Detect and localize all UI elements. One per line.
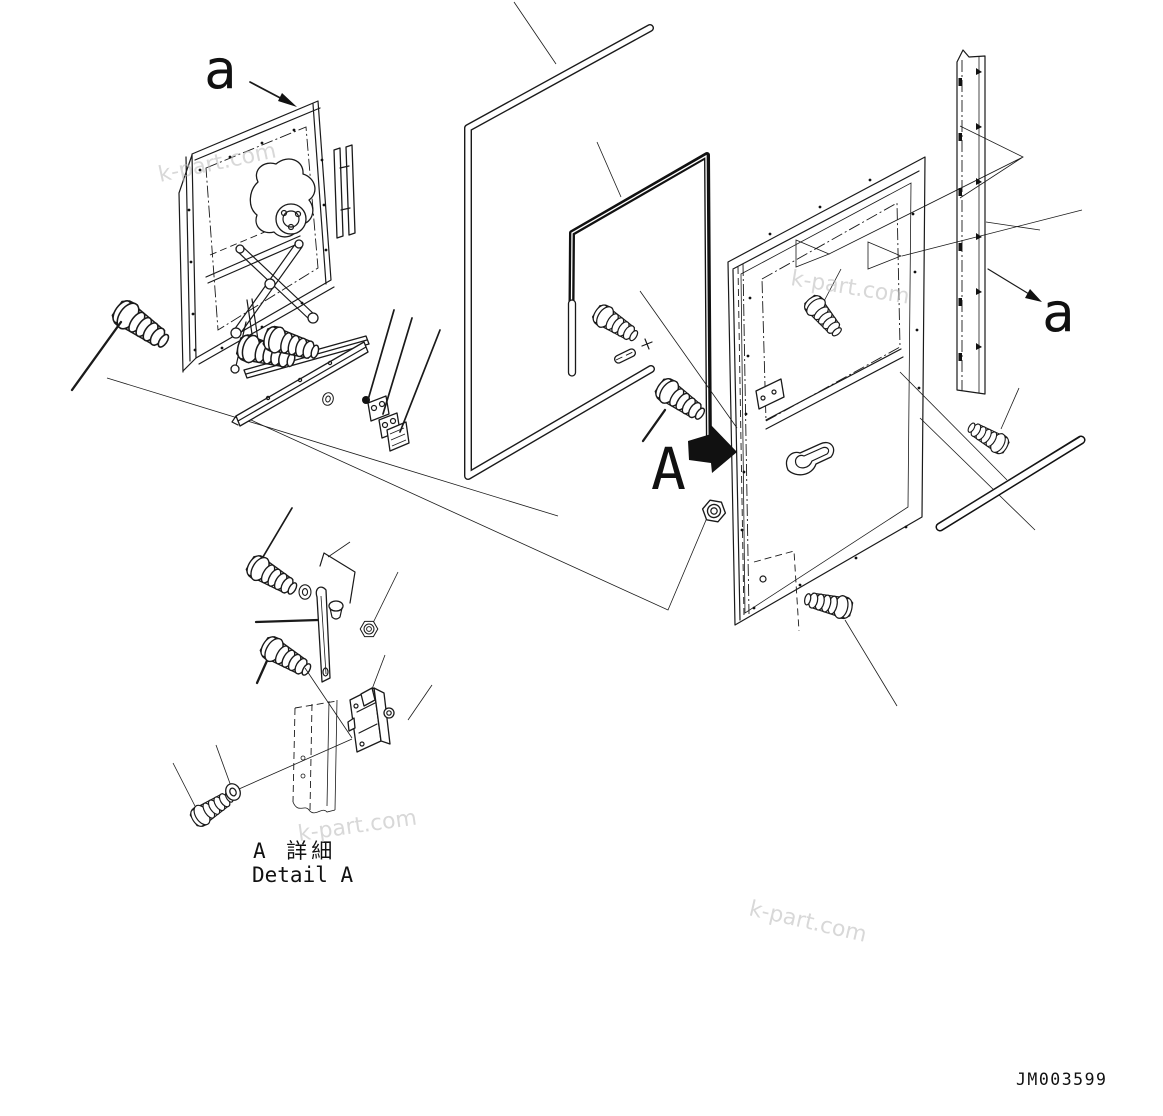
view-callout-a-left: a [204, 38, 297, 107]
bolt [802, 588, 854, 621]
washer [299, 585, 311, 599]
parts-diagram-page: a [0, 0, 1163, 1116]
arrowhead [278, 93, 297, 107]
bolt [964, 418, 1011, 457]
arrowhead [1025, 289, 1042, 302]
lock-mount-post [293, 700, 337, 813]
bolt [257, 633, 315, 682]
view-label-a-right: a [1042, 281, 1075, 344]
leader-line [597, 142, 621, 197]
nut [701, 499, 727, 523]
watermarks: k-part.com k-part.com k-part.com k-part.… [156, 139, 911, 948]
detail-a-assembly [173, 508, 432, 830]
glass-run-channel [468, 2, 651, 476]
spacer-pin [613, 348, 636, 364]
nut [360, 621, 378, 636]
bolt [801, 292, 847, 341]
bolt [590, 301, 643, 346]
regulator-mount-rail [232, 310, 440, 451]
leader-line [514, 2, 556, 64]
projection-triangle [868, 242, 901, 269]
detail-title-en: Detail A [252, 863, 354, 887]
bushing [329, 601, 343, 619]
exploded-parts-diagram: a [0, 0, 1163, 1116]
washer [321, 391, 334, 406]
detail-callout-A: A [651, 424, 737, 503]
watermark-text: k-part.com [747, 896, 869, 947]
door-panel [728, 157, 925, 631]
detail-arrow [688, 424, 737, 473]
watermark-text: k-part.com [296, 806, 418, 847]
door-handle [787, 443, 834, 475]
bolt [243, 552, 301, 601]
latch-bracket [756, 379, 784, 409]
door-edge-strip [957, 50, 1040, 394]
door-lock-latch [348, 688, 394, 752]
lock-lever [316, 587, 330, 682]
view-callout-a-right: a [988, 269, 1075, 344]
lower-trim-strip [939, 437, 1081, 527]
view-label-a-left: a [204, 38, 237, 101]
detail-marker-label: A [651, 435, 686, 503]
drawing-number: JM003599 [1016, 1070, 1107, 1089]
